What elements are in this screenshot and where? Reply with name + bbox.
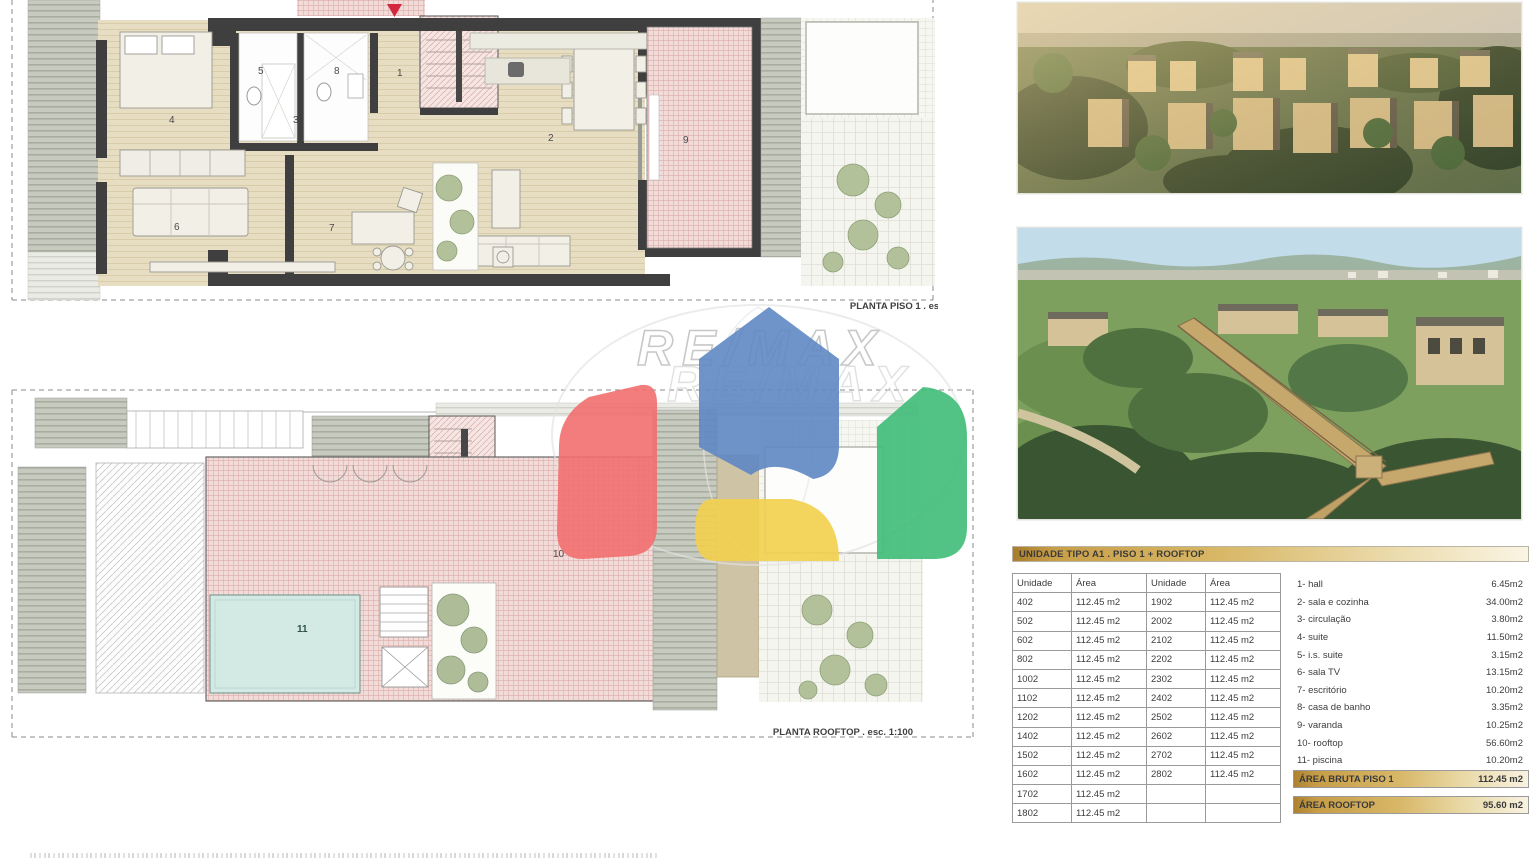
photo-aerial-park: [1017, 227, 1522, 520]
deck-left-lower: [28, 252, 100, 300]
legend-item: 6- sala TV13.15m2: [1297, 664, 1523, 682]
yellow-shape: [695, 499, 839, 561]
dining-table: [562, 48, 646, 130]
table-row: 1802112.45 m2: [1013, 804, 1281, 823]
hatch-block: [382, 647, 428, 687]
legend-item: 10- rooftop56.60m2: [1297, 734, 1523, 752]
room-label-6: 6: [174, 222, 180, 233]
bathroom-8: [304, 33, 368, 141]
entry-tile: [297, 0, 425, 16]
varanda-step: [649, 95, 659, 180]
floorplan-piso1: 1 2 3 4 5 6 7 8 9 PLANTA PISO 1 . esc. 1…: [8, 0, 938, 312]
garden-paving: [801, 118, 935, 286]
roof-rafters: [127, 411, 303, 448]
unit-type-title: UNIDADE TIPO A1 . PISO 1 + ROOFTOP: [1019, 549, 1205, 560]
legend-item: 5- i.s. suite3.15m2: [1297, 646, 1523, 664]
table-row: 502112.45 m22002112.45 m2: [1013, 612, 1281, 631]
col-header: Unidade: [1013, 574, 1072, 593]
legend-item: 8- casa de banho3.35m2: [1297, 699, 1523, 717]
pool: [210, 595, 360, 693]
rooftop-stairs: [380, 587, 428, 637]
deck-left-rooftop: [18, 467, 86, 693]
fine-print-illegible: [30, 853, 660, 858]
brochure-page: 1 2 3 4 5 6 7 8 9 PLANTA PISO 1 . esc. 1…: [0, 0, 1536, 864]
laundry: [493, 247, 513, 267]
photo-aerial-development: [1017, 2, 1522, 194]
total-area-rooftop-bar: ÁREA ROOFTOP 95.60 m2: [1293, 796, 1529, 814]
room-label-3: 3: [293, 115, 299, 126]
table-row: 1602112.45 m22802112.45 m2: [1013, 765, 1281, 784]
legend-item: 9- varanda10.25m2: [1297, 717, 1523, 735]
units-header-row: Unidade Área Unidade Área: [1013, 574, 1281, 593]
red-shape: [557, 385, 657, 559]
units-table: Unidade Área Unidade Área 402112.45 m219…: [1012, 573, 1281, 823]
deck-varanda: [761, 18, 801, 257]
table-row: 1002112.45 m22302112.45 m2: [1013, 669, 1281, 688]
legend-item: 11- piscina10.20m2: [1297, 752, 1523, 770]
room-label-5: 5: [258, 66, 264, 77]
room-label-7: 7: [329, 223, 335, 234]
roof-deck-tl: [35, 398, 127, 448]
legend-item: 7- escritório10.20m2: [1297, 682, 1523, 700]
unit-type-title-bar: UNIDADE TIPO A1 . PISO 1 + ROOFTOP: [1012, 546, 1529, 562]
room-label-4: 4: [169, 115, 175, 126]
rooftop-planter: [432, 583, 496, 699]
deck-left: [28, 0, 100, 252]
total-label: ÁREA BRUTA PISO 1: [1299, 774, 1394, 785]
legend-item: 2- sala e cozinha34.00m2: [1297, 594, 1523, 612]
sideboard: [150, 262, 335, 272]
room-label-1: 1: [397, 68, 403, 79]
col-header: Área: [1072, 574, 1147, 593]
table-row: 1202112.45 m22502112.45 m2: [1013, 708, 1281, 727]
legend-item: 3- circulação3.80m2: [1297, 611, 1523, 629]
table-row: 1502112.45 m22702112.45 m2: [1013, 746, 1281, 765]
green-shape: [877, 387, 967, 559]
caption-rooftop: PLANTA ROOFTOP . esc. 1:100: [773, 727, 913, 738]
table-row: 402112.45 m21902112.45 m2: [1013, 593, 1281, 612]
table-row: 1702112.45 m2: [1013, 785, 1281, 804]
hatched-roof: [96, 463, 204, 693]
total-value: 95.60 m2: [1483, 800, 1523, 811]
remax-watermark: RE/MAX RE/MAX: [545, 295, 975, 567]
total-value: 112.45 m2: [1478, 774, 1523, 785]
total-label: ÁREA ROOFTOP: [1299, 800, 1375, 811]
varanda-tile: [647, 27, 752, 248]
room-label-11: 11: [297, 624, 308, 635]
room-label-8: 8: [334, 66, 340, 77]
room-label-9: 9: [683, 135, 689, 146]
table-row: 1402112.45 m22602112.45 m2: [1013, 727, 1281, 746]
bed: [120, 32, 212, 108]
sofa-tv: [133, 188, 248, 236]
room-legend: 1- hall6.45m2 2- sala e cozinha34.00m2 3…: [1297, 576, 1523, 770]
total-area-piso1-bar: ÁREA BRUTA PISO 1 112.45 m2: [1293, 770, 1529, 788]
bathroom-5: [239, 33, 297, 141]
table-row: 602112.45 m22102112.45 m2: [1013, 631, 1281, 650]
room-label-2: 2: [548, 133, 554, 144]
col-header: Área: [1206, 574, 1281, 593]
wardrobe: [120, 150, 245, 176]
table-row: 802112.45 m22202112.45 m2: [1013, 650, 1281, 669]
col-header: Unidade: [1147, 574, 1206, 593]
legend-item: 1- hall6.45m2: [1297, 576, 1523, 594]
garden-planter: [806, 22, 918, 114]
roof-deck-tc: [312, 416, 436, 463]
table-row: 1102112.45 m22402112.45 m2: [1013, 689, 1281, 708]
armchair: [492, 170, 520, 228]
legend-item: 4- suite11.50m2: [1297, 629, 1523, 647]
interior-planter: [433, 163, 478, 270]
